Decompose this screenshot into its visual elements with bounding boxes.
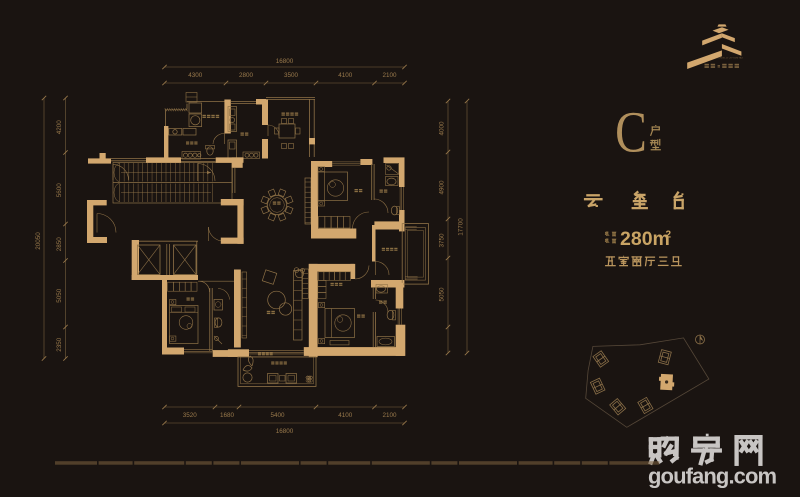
svg-text:J I N G L U · Z I Y U N T A I: J I N G L U · Z I Y U N T A I	[717, 56, 743, 59]
svg-text:4000: 4000	[439, 121, 446, 136]
svg-text:16800: 16800	[276, 428, 294, 435]
svg-text:4100: 4100	[338, 72, 353, 79]
svg-text:4900: 4900	[439, 180, 446, 195]
svg-text:3500: 3500	[284, 72, 299, 79]
svg-text:1680: 1680	[220, 412, 235, 419]
svg-text:16800: 16800	[276, 58, 294, 65]
svg-text:5050: 5050	[439, 287, 446, 302]
svg-text:goufang.com: goufang.com	[648, 464, 777, 489]
svg-text:2350: 2350	[56, 337, 63, 352]
svg-text:2800: 2800	[239, 72, 254, 79]
svg-text:3750: 3750	[439, 233, 446, 248]
svg-text:4200: 4200	[56, 120, 63, 135]
svg-text:2100: 2100	[382, 72, 397, 79]
svg-text:2: 2	[666, 230, 672, 241]
svg-text:17700: 17700	[458, 218, 465, 236]
svg-text:2850: 2850	[56, 237, 63, 252]
svg-text:C: C	[615, 101, 647, 164]
svg-text:5050: 5050	[56, 288, 63, 303]
svg-text:4300: 4300	[188, 72, 203, 79]
svg-text:5600: 5600	[56, 183, 63, 198]
svg-text:20050: 20050	[35, 232, 42, 250]
svg-text:2100: 2100	[382, 412, 397, 419]
svg-text:4100: 4100	[338, 412, 353, 419]
svg-text:3520: 3520	[183, 412, 198, 419]
svg-text:280m: 280m	[620, 228, 670, 250]
svg-text:5400: 5400	[270, 412, 285, 419]
